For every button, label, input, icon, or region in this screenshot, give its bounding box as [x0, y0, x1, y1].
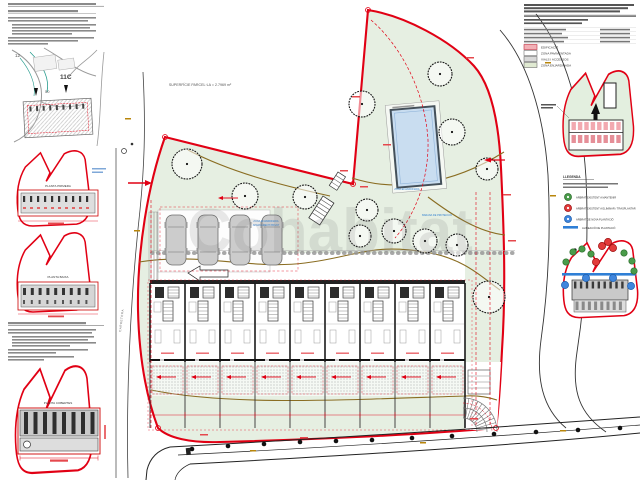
- fake-text-line: [541, 104, 556, 106]
- floor-diagram-label: PLANTA PRIMERA: [45, 184, 71, 188]
- fake-text-line: [563, 183, 618, 185]
- keyplan-zoning-inset: [541, 71, 634, 156]
- unit-red-label-mark: [441, 353, 454, 354]
- unit-terrace: [397, 366, 428, 394]
- tick-mark: [72, 207, 75, 209]
- tick-mark: [91, 412, 95, 434]
- fake-text-line: [600, 29, 630, 31]
- site-plan-sheet: 12 11C 50 PLANTA PRIMERA PLANTA BAIXA PL…: [0, 0, 640, 480]
- tick-mark: [580, 282, 582, 289]
- unit-red-label-mark: [336, 353, 349, 354]
- fake-text-line: [524, 33, 562, 35]
- tick-mark: [62, 288, 65, 295]
- fake-text-line: [8, 37, 94, 39]
- tick-mark: [615, 282, 617, 289]
- left-notes-block-top: [8, 3, 96, 45]
- unit-terrace: [257, 366, 288, 394]
- legend-swatch-enjardinada: [524, 63, 537, 68]
- tick-mark: [604, 282, 606, 289]
- tick-mark: [78, 300, 80, 304]
- unit-red-label-mark: [371, 353, 384, 354]
- tick-mark: [591, 135, 595, 143]
- tree: [476, 158, 498, 180]
- arrow-icon: [64, 85, 68, 93]
- tick-mark: [70, 300, 72, 304]
- street-tree: [450, 434, 455, 439]
- tick-mark: [82, 104, 84, 109]
- tick-mark: [574, 282, 576, 289]
- tick-mark: [44, 207, 47, 209]
- tick-mark: [54, 300, 56, 304]
- fake-text-line: [600, 41, 630, 43]
- fake-text-line: [8, 3, 96, 5]
- tick-mark: [86, 196, 88, 202]
- tick-mark: [572, 122, 576, 130]
- fake-text-line: [12, 339, 88, 341]
- tick-mark: [607, 302, 610, 311]
- tree: [349, 91, 375, 117]
- fake-text-line: [8, 329, 96, 331]
- fake-text-line: [12, 342, 96, 344]
- unit-terrace: [222, 366, 253, 394]
- tick-mark: [30, 196, 32, 202]
- tree-legend-label: ARBRAT EXISTENT A MANTENIR: [576, 195, 616, 199]
- tree: [439, 119, 465, 145]
- tick-mark: [584, 122, 588, 130]
- tree: [172, 149, 202, 179]
- street-tree: [534, 430, 539, 435]
- tick-mark: [619, 302, 622, 311]
- fake-text-line: [8, 17, 96, 19]
- fake-text-line: [524, 37, 568, 39]
- right-road: [500, 14, 606, 432]
- rear-wall: [150, 280, 465, 284]
- tick-mark: [29, 106, 31, 111]
- fake-text-line: [8, 322, 86, 324]
- unit-red-label-mark: [266, 353, 279, 354]
- site-plan-drawing: 12 11C 50 PLANTA PRIMERA PLANTA BAIXA PL…: [0, 0, 640, 480]
- street-tree: [618, 426, 623, 431]
- map-label-plot: 50: [45, 89, 50, 94]
- street-tree: [576, 428, 581, 433]
- tick-mark: [46, 288, 49, 295]
- fake-text-line: [524, 10, 620, 12]
- tick-mark: [54, 288, 57, 295]
- fake-text-line: [8, 359, 44, 361]
- tick-mark: [616, 122, 620, 130]
- tick-mark: [49, 105, 51, 110]
- tick-mark: [39, 300, 41, 304]
- tick-mark: [37, 207, 40, 209]
- tick-mark: [56, 105, 58, 110]
- street-tree: [226, 444, 231, 449]
- fake-text-line: [12, 33, 72, 35]
- legend-swatch-vials: [524, 57, 537, 62]
- legend-swatch-edificacio: [524, 45, 537, 50]
- unit-terrace: [187, 366, 218, 394]
- blue-line-symbol-icon: [563, 226, 578, 229]
- tick-mark: [592, 282, 594, 289]
- retaining-wall: [149, 212, 158, 282]
- unit-terrace: [362, 366, 393, 394]
- fake-text-line: [12, 24, 96, 26]
- unit-red-label-mark: [196, 353, 209, 354]
- fake-text-line: [8, 10, 78, 12]
- legend-label: ZONA PAVIMENTADA: [541, 52, 571, 56]
- tick-mark: [65, 207, 68, 209]
- tick-mark: [51, 196, 53, 202]
- tick-mark: [62, 105, 64, 110]
- tick-mark: [586, 282, 588, 289]
- tick-mark: [62, 412, 66, 434]
- tick-mark: [72, 196, 74, 202]
- tick-mark: [621, 282, 623, 289]
- unit-red-label-mark: [161, 353, 174, 354]
- tick-mark: [31, 300, 33, 304]
- unit-red-label-mark: [231, 353, 244, 354]
- street-tree: [492, 432, 497, 437]
- unit-terrace: [432, 366, 463, 394]
- tick-mark: [65, 196, 67, 202]
- fake-text-line: [8, 43, 48, 45]
- tick-mark: [600, 302, 603, 311]
- fake-text-line: [12, 30, 96, 32]
- tick-mark: [588, 302, 591, 311]
- fake-text-line: [8, 356, 74, 358]
- tick-mark: [23, 196, 25, 202]
- tick-mark: [72, 412, 76, 434]
- tick-mark: [24, 412, 28, 434]
- tick-mark: [43, 106, 45, 111]
- tick-mark: [78, 288, 81, 295]
- street-tree: [334, 439, 339, 444]
- tick-mark: [53, 412, 57, 434]
- watermark: Cohabitat: [187, 197, 473, 266]
- tick-mark: [578, 135, 582, 143]
- tree-legend-heading: LLEGENDA: [563, 175, 581, 179]
- tick-mark: [576, 302, 579, 311]
- tick-mark: [85, 288, 88, 295]
- tick-mark: [578, 122, 582, 130]
- fake-text-line: [563, 187, 608, 189]
- fake-text-line: [8, 20, 88, 22]
- tick-mark: [613, 302, 616, 311]
- fake-text-line: [8, 40, 78, 42]
- tick-mark: [597, 135, 601, 143]
- legend-label: ZONA ENJARDINADA: [541, 64, 571, 68]
- tick-mark: [616, 135, 620, 143]
- tick-mark: [75, 104, 77, 109]
- map-label-parcel-11c: 11C: [60, 74, 72, 81]
- fake-text-line: [12, 345, 70, 347]
- legend-swatch-pavimentada: [524, 51, 537, 56]
- tick-mark: [70, 288, 73, 295]
- tick-mark: [31, 288, 34, 295]
- tick-mark: [36, 106, 38, 111]
- inset-map-parcel: [23, 98, 93, 138]
- fake-text-line: [8, 349, 88, 351]
- fake-text-line: [524, 29, 566, 31]
- tick-mark: [598, 282, 600, 289]
- street-tree: [410, 436, 415, 441]
- tick-mark: [34, 412, 38, 434]
- legend-label: EDIFICACIÓ: [541, 45, 559, 50]
- plantation-alignment-line: [562, 273, 636, 276]
- unit-red-label-mark: [406, 353, 419, 354]
- tick-mark: [572, 135, 576, 143]
- tick-mark: [610, 135, 614, 143]
- tick-mark: [58, 207, 61, 209]
- tick-mark: [79, 196, 81, 202]
- fake-text-line: [600, 37, 630, 39]
- map-label-block: 12: [15, 53, 21, 58]
- floor-diagram-label: PLANTA BAIXA: [48, 275, 69, 279]
- floor-diagram-label: PLANTA COBERTES: [44, 401, 73, 405]
- tick-mark: [81, 412, 85, 434]
- tick-mark: [23, 300, 25, 304]
- manhole-icon: [131, 143, 134, 146]
- tree: [473, 281, 505, 313]
- unit-terrace: [152, 366, 183, 394]
- unit-terrace: [292, 366, 323, 394]
- fake-text-line: [541, 107, 553, 109]
- tick-mark: [609, 282, 611, 289]
- tick-mark: [591, 122, 595, 130]
- street-tree: [298, 440, 303, 445]
- left-notes-block-bottom: [8, 322, 96, 361]
- fake-text-line: [12, 336, 94, 338]
- keyplan-pool: [604, 83, 616, 108]
- inset-map: 12 11C 50: [12, 48, 104, 146]
- parcel-area-label: SUPERFÍCIE PARCEL·LA = 2.7969 m²: [169, 83, 232, 87]
- fake-text-line: [12, 27, 90, 29]
- tick-mark: [39, 288, 42, 295]
- tick-mark: [43, 412, 47, 434]
- fake-text-line: [600, 33, 630, 35]
- fake-text-line: [8, 332, 92, 334]
- surface-legend: EDIFICACIÓ ZONA PAVIMENTADA VIALS I ACCE…: [524, 45, 571, 68]
- tick-mark: [51, 207, 54, 209]
- fake-text-line: [8, 352, 56, 354]
- tick-mark: [30, 207, 33, 209]
- swimming-pool: [385, 101, 446, 193]
- manhole-icon: [122, 149, 127, 154]
- tick-mark: [85, 300, 87, 304]
- tick-mark: [23, 288, 26, 295]
- tick-mark: [79, 207, 82, 209]
- annotation-zona-enjardinada: ZONA ENJARDINADA: [394, 188, 419, 191]
- tick-mark: [597, 122, 601, 130]
- keyplan-trees-inset: [561, 238, 637, 317]
- tick-mark: [69, 104, 71, 109]
- utility-box-icon: [186, 448, 191, 455]
- floor-diagram-planta-cobertes: PLANTA COBERTES: [15, 366, 106, 473]
- tick-mark: [58, 196, 60, 202]
- street-tree: [262, 442, 267, 447]
- legend-label: VIALS I ACCESSOS: [541, 58, 569, 62]
- floor-diagram-planta-baixa: PLANTA BAIXA: [17, 233, 98, 317]
- fake-text-line: [524, 7, 628, 9]
- floor-diagram-planta-primera: PLANTA PRIMERA: [17, 151, 98, 226]
- title-block: [524, 4, 634, 24]
- tree-legend-label: ARBRAT EXISTENT A ELIMINAR / TRASPLANTAR: [576, 206, 636, 210]
- tree-legend: LLEGENDA ARBRAT EXISTENT A MANTENIR ARBR…: [563, 175, 636, 230]
- tick-mark: [44, 196, 46, 202]
- unit-terrace: [327, 366, 358, 394]
- street-name-label: CARRETERA: [118, 309, 125, 332]
- tree-legend-label: ARBRAT DE NOVA PLANTACIÓ: [576, 216, 614, 221]
- tick-mark: [582, 302, 585, 311]
- street-tree: [370, 438, 375, 443]
- tick-mark: [23, 207, 26, 209]
- fake-text-line: [524, 19, 588, 21]
- fake-text-line: [524, 41, 564, 43]
- tick-mark: [62, 300, 64, 304]
- parked-car: [165, 215, 188, 265]
- tick-mark: [46, 300, 48, 304]
- fake-text-line: [524, 4, 634, 6]
- unit-red-label-mark: [301, 353, 314, 354]
- tick-mark: [594, 302, 597, 311]
- tick-mark: [610, 122, 614, 130]
- tick-mark: [86, 207, 89, 209]
- tree: [428, 62, 452, 86]
- tick-mark: [37, 196, 39, 202]
- tick-mark: [604, 122, 608, 130]
- fake-text-line: [524, 22, 582, 24]
- tick-mark: [584, 135, 588, 143]
- tick-mark: [604, 135, 608, 143]
